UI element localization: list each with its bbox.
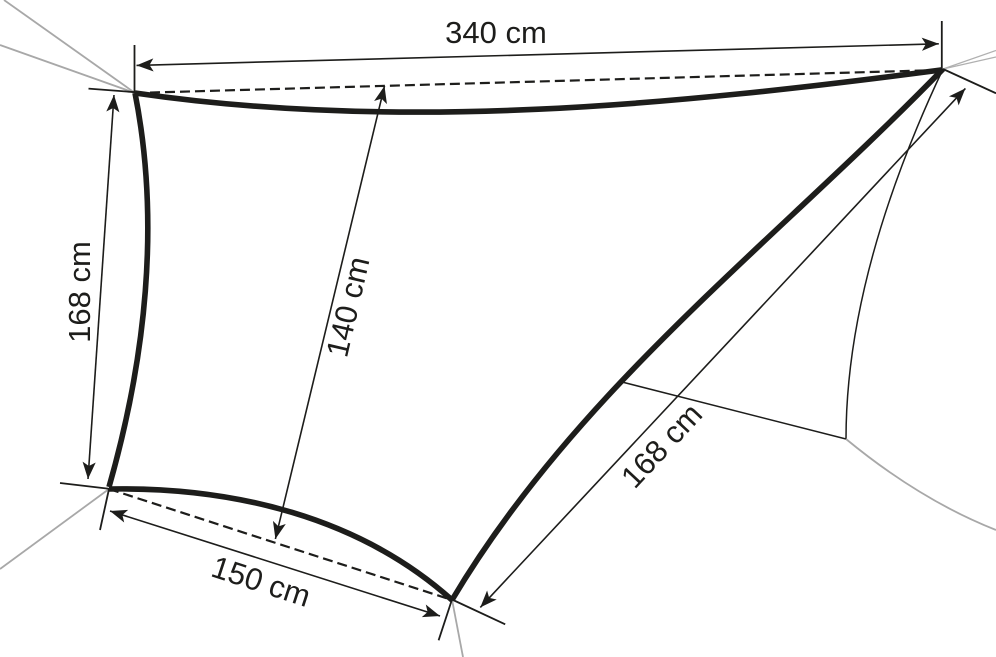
svg-text:168 cm: 168 cm <box>62 241 97 343</box>
svg-text:340 cm: 340 cm <box>445 15 547 50</box>
svg-text:140 cm: 140 cm <box>320 253 377 360</box>
svg-text:168 cm: 168 cm <box>614 397 709 495</box>
